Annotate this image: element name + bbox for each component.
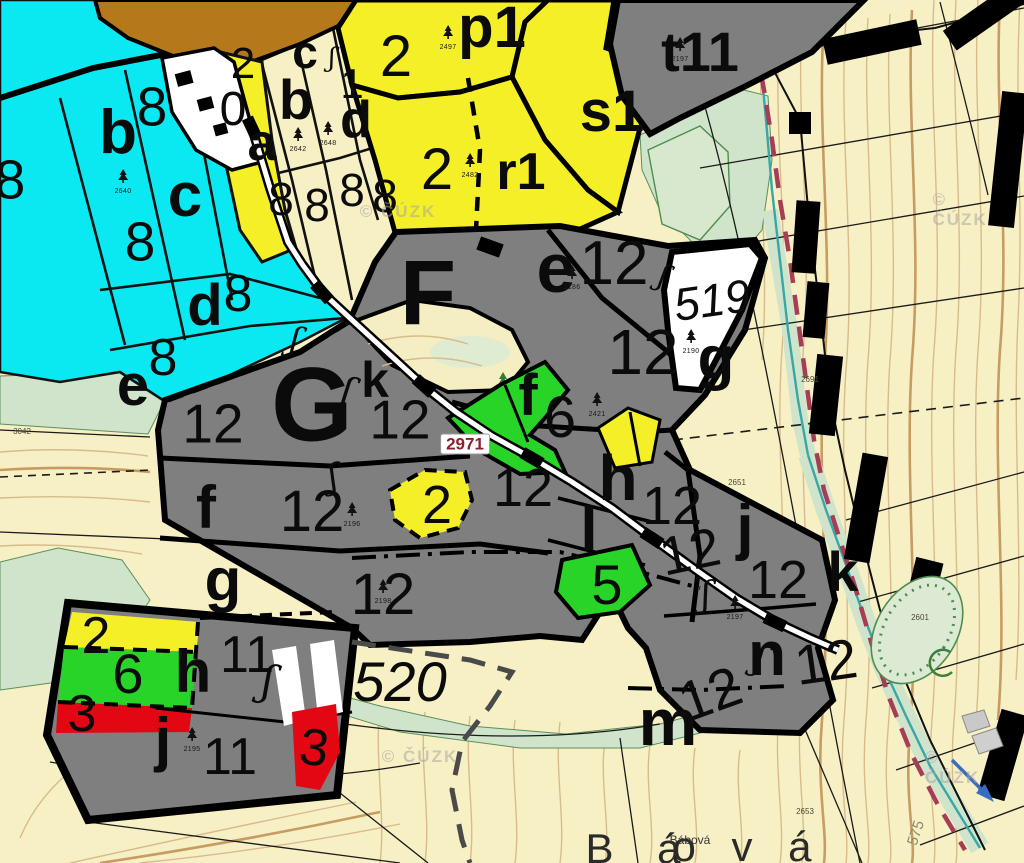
parcel-h11-j11 bbox=[47, 603, 355, 820]
map-viewport[interactable]: 8b8c8d8e820acb1d88882p1s12r1t11Fe1212519… bbox=[0, 0, 1024, 863]
map-canvas[interactable] bbox=[0, 0, 1024, 863]
